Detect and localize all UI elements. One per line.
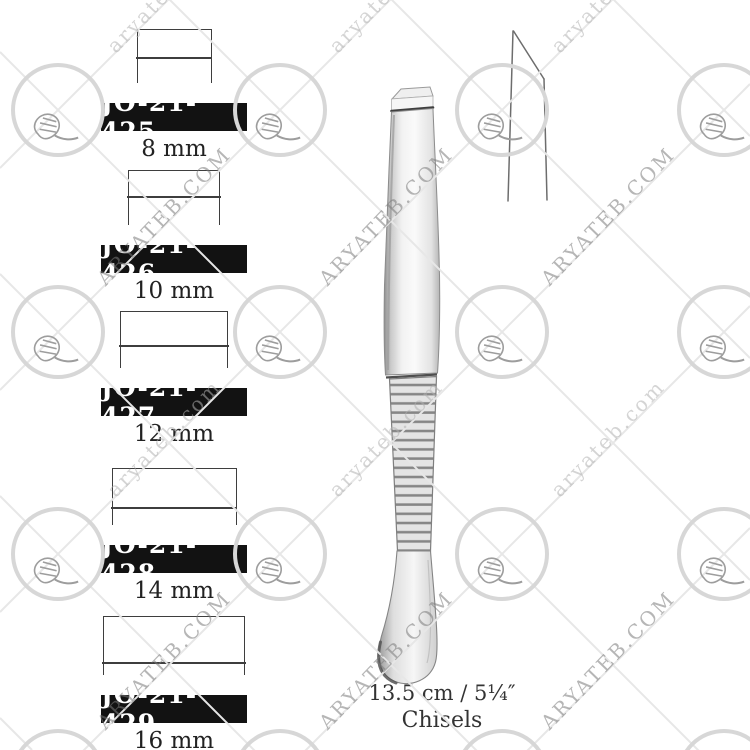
chisel-tip-profile-drawing: [508, 31, 547, 201]
tip-front-view-drawing: [120, 311, 228, 368]
item-code-badge: JO-21-428: [101, 545, 247, 573]
product-catalog-sheet: JO-21-425 8 mm JO-21-426 10 mm JO-21-427…: [0, 0, 750, 750]
item-code-badge: JO-21-426: [101, 245, 247, 273]
item-code-badge: JO-21-427: [101, 388, 247, 416]
size-variant-jo-21-425: JO-21-425 8 mm: [101, 27, 247, 162]
tip-front-view-drawing: [112, 468, 237, 525]
tip-front-view-drawing: [137, 29, 212, 83]
size-variant-jo-21-429: JO-21-429 16 mm: [101, 619, 247, 750]
item-code-badge: JO-21-429: [101, 695, 247, 723]
tip-front-view-drawing: [128, 170, 220, 225]
item-size-label: 12 mm: [134, 421, 214, 447]
size-variant-jo-21-426: JO-21-426 10 mm: [101, 169, 247, 304]
blade-edge-line: [102, 662, 245, 664]
chisel-ribbed-grip: [390, 377, 437, 552]
tip-front-view-drawing: [103, 616, 245, 675]
size-variant-jo-21-428: JO-21-428 14 mm: [101, 469, 247, 604]
item-size-label: 8 mm: [141, 136, 207, 162]
blade-edge-line: [136, 57, 212, 59]
item-code-badge: JO-21-425: [101, 103, 247, 131]
blade-edge-line: [127, 196, 220, 198]
item-size-label: 16 mm: [134, 728, 214, 750]
size-variant-jo-21-427: JO-21-427 12 mm: [101, 312, 247, 447]
blade-edge-line: [119, 345, 228, 347]
blade-edge-line: [111, 507, 237, 509]
chisel-side-illustration: [379, 87, 440, 684]
item-size-label: 10 mm: [134, 278, 214, 304]
product-name: Chisels: [302, 708, 582, 733]
product-caption: 13.5 cm / 5¼″ Chisels: [302, 681, 582, 733]
product-length: 13.5 cm / 5¼″: [302, 681, 582, 705]
item-size-label: 14 mm: [134, 578, 214, 604]
